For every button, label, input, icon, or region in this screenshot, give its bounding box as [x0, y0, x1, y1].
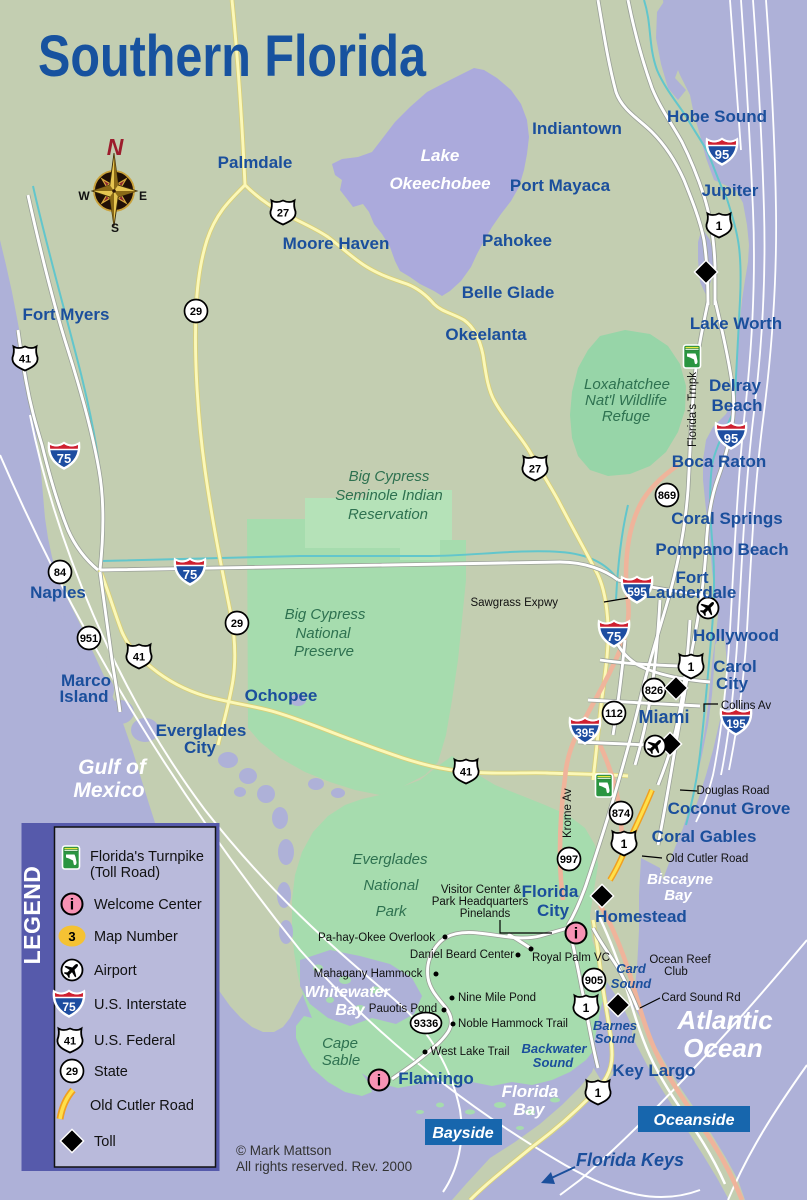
svg-text:Pahokee: Pahokee — [482, 231, 552, 250]
svg-text:3: 3 — [68, 929, 75, 944]
svg-text:Sound: Sound — [533, 1055, 574, 1070]
svg-text:29: 29 — [231, 618, 243, 630]
svg-text:Florida's Turnpike: Florida's Turnpike — [90, 849, 204, 865]
svg-text:Pompano Beach: Pompano Beach — [655, 540, 788, 559]
svg-text:N: N — [107, 134, 124, 160]
svg-text:Old Cutler Road: Old Cutler Road — [666, 853, 748, 865]
svg-text:All rights reserved. Rev. 2000: All rights reserved. Rev. 2000 — [236, 1159, 412, 1174]
svg-text:826: 826 — [645, 685, 663, 697]
svg-text:Oceanside: Oceanside — [654, 1112, 735, 1129]
svg-text:29: 29 — [66, 1066, 78, 1078]
svg-text:Bay: Bay — [335, 1002, 365, 1019]
svg-text:Toll: Toll — [94, 1134, 116, 1150]
svg-text:Old Cutler Road: Old Cutler Road — [90, 1098, 194, 1114]
svg-text:1: 1 — [621, 837, 628, 851]
svg-text:U.S. Interstate: U.S. Interstate — [94, 997, 187, 1013]
svg-text:Ochopee: Ochopee — [245, 686, 318, 705]
svg-text:869: 869 — [658, 490, 676, 502]
svg-text:Okeelanta: Okeelanta — [445, 325, 527, 344]
svg-text:LEGEND: LEGEND — [19, 866, 45, 965]
svg-text:Boca Raton: Boca Raton — [672, 452, 766, 471]
svg-text:75: 75 — [62, 1000, 76, 1014]
svg-text:Hollywood: Hollywood — [693, 626, 779, 645]
svg-text:41: 41 — [133, 652, 145, 664]
svg-text:Beach: Beach — [711, 396, 762, 415]
svg-text:Pinelands: Pinelands — [460, 908, 511, 920]
svg-text:Backwater: Backwater — [521, 1041, 587, 1056]
svg-text:75: 75 — [183, 567, 197, 582]
svg-text:Key Largo: Key Largo — [612, 1061, 695, 1080]
svg-text:Mahagany Hammock: Mahagany Hammock — [314, 968, 423, 980]
svg-text:Coral Springs: Coral Springs — [671, 509, 782, 528]
svg-text:Card Sound Rd: Card Sound Rd — [661, 992, 740, 1004]
svg-text:195: 195 — [726, 719, 746, 731]
svg-text:National: National — [295, 625, 351, 642]
svg-text:Indiantown: Indiantown — [532, 119, 622, 138]
svg-text:Lake: Lake — [421, 146, 460, 165]
svg-text:U.S. Federal: U.S. Federal — [94, 1033, 175, 1049]
svg-text:41: 41 — [19, 354, 31, 366]
svg-text:Florida Keys: Florida Keys — [576, 1150, 684, 1170]
svg-text:Collins Av: Collins Av — [721, 700, 772, 712]
svg-text:874: 874 — [612, 808, 631, 820]
svg-text:Palmdale: Palmdale — [218, 153, 293, 172]
svg-text:Atlantic: Atlantic — [676, 1005, 773, 1035]
svg-text:Big Cypress: Big Cypress — [285, 606, 366, 623]
svg-text:84: 84 — [54, 567, 67, 579]
svg-text:Sable: Sable — [322, 1052, 360, 1069]
svg-text:1: 1 — [688, 660, 695, 674]
svg-text:27: 27 — [529, 464, 541, 476]
svg-text:95: 95 — [724, 431, 738, 446]
svg-text:Noble Hammock Trail: Noble Hammock Trail — [458, 1018, 568, 1030]
svg-text:Okeechobee: Okeechobee — [389, 174, 490, 193]
svg-text:Douglas Road: Douglas Road — [697, 785, 770, 797]
svg-text:Hobe Sound: Hobe Sound — [667, 107, 767, 126]
svg-text:Coconut Grove: Coconut Grove — [668, 799, 791, 818]
svg-text:Lake Worth: Lake Worth — [690, 314, 782, 333]
svg-text:Refuge: Refuge — [602, 408, 650, 425]
svg-text:Jupiter: Jupiter — [702, 181, 759, 200]
svg-text:9336: 9336 — [414, 1018, 438, 1030]
svg-text:West Lake Trail: West Lake Trail — [430, 1046, 509, 1058]
svg-text:112: 112 — [605, 708, 623, 720]
svg-text:27: 27 — [277, 208, 289, 220]
svg-text:Bayside: Bayside — [432, 1125, 493, 1142]
svg-text:Loxahatchee: Loxahatchee — [584, 376, 670, 393]
svg-text:Royal Palm VC: Royal Palm VC — [532, 952, 610, 964]
svg-text:Fort Myers: Fort Myers — [23, 305, 110, 324]
svg-text:S: S — [111, 221, 119, 235]
svg-text:Moore Haven: Moore Haven — [283, 234, 390, 253]
svg-text:905: 905 — [585, 975, 603, 987]
svg-text:(Toll Road): (Toll Road) — [90, 865, 160, 881]
svg-text:Airport: Airport — [94, 963, 137, 979]
svg-text:National: National — [363, 877, 419, 894]
svg-text:Florida: Florida — [502, 1082, 559, 1101]
svg-text:Belle Glade: Belle Glade — [462, 283, 555, 302]
svg-text:Island: Island — [59, 687, 108, 706]
svg-text:Ocean Reef: Ocean Reef — [649, 954, 711, 966]
svg-text:© Mark Mattson: © Mark Mattson — [236, 1143, 331, 1158]
svg-text:Florida: Florida — [522, 882, 579, 901]
svg-text:1: 1 — [595, 1086, 602, 1100]
svg-text:Park Headquarters: Park Headquarters — [432, 896, 529, 908]
svg-text:Bay: Bay — [513, 1100, 546, 1119]
svg-text:29: 29 — [190, 306, 202, 318]
svg-text:Preserve: Preserve — [294, 643, 354, 660]
svg-text:Ocean: Ocean — [683, 1033, 763, 1063]
svg-text:Reservation: Reservation — [348, 506, 428, 523]
svg-text:951: 951 — [80, 633, 98, 645]
svg-text:Card: Card — [616, 961, 647, 976]
svg-text:Park: Park — [376, 903, 408, 920]
svg-text:Krome Av: Krome Av — [562, 788, 574, 838]
svg-text:Miami: Miami — [638, 707, 689, 727]
svg-text:Biscayne: Biscayne — [647, 871, 713, 888]
svg-text:Club: Club — [664, 966, 688, 978]
svg-text:Southern Florida: Southern Florida — [38, 24, 427, 89]
svg-text:Daniel Beard Center: Daniel Beard Center — [410, 949, 514, 961]
svg-text:E: E — [139, 189, 147, 203]
svg-text:W: W — [78, 189, 90, 203]
svg-text:Lauderdale: Lauderdale — [646, 583, 737, 602]
svg-text:Gulf of: Gulf of — [78, 756, 148, 779]
svg-text:State: State — [94, 1064, 128, 1080]
svg-text:City: City — [716, 674, 749, 693]
svg-text:City: City — [184, 738, 217, 757]
svg-text:Whitewater: Whitewater — [304, 984, 390, 1001]
svg-text:1: 1 — [716, 219, 723, 233]
svg-text:595: 595 — [627, 587, 647, 599]
svg-text:Big Cypress: Big Cypress — [349, 468, 430, 485]
svg-text:75: 75 — [607, 629, 621, 644]
svg-text:Nat'l Wildlife: Nat'l Wildlife — [585, 392, 667, 409]
svg-text:Naples: Naples — [30, 583, 86, 602]
svg-text:41: 41 — [460, 767, 472, 779]
svg-text:Seminole Indian: Seminole Indian — [335, 487, 443, 504]
svg-text:Bay: Bay — [664, 887, 692, 904]
svg-text:Florida's Trnpk: Florida's Trnpk — [687, 372, 699, 447]
svg-text:Pauotis Pond: Pauotis Pond — [369, 1003, 437, 1015]
svg-text:Nine Mile Pond: Nine Mile Pond — [458, 992, 536, 1004]
svg-text:1: 1 — [583, 1001, 590, 1015]
svg-text:75: 75 — [57, 451, 71, 466]
svg-text:Coral Gables: Coral Gables — [652, 827, 757, 846]
svg-text:Delray: Delray — [709, 376, 762, 395]
svg-text:41: 41 — [64, 1036, 76, 1048]
svg-text:Cape: Cape — [322, 1035, 358, 1052]
svg-text:Welcome Center: Welcome Center — [94, 897, 202, 913]
svg-text:Everglades: Everglades — [352, 851, 428, 868]
svg-text:Port Mayaca: Port Mayaca — [510, 176, 611, 195]
svg-text:Homestead: Homestead — [595, 907, 687, 926]
svg-text:Map Number: Map Number — [94, 929, 178, 945]
svg-text:Sawgrass Expwy: Sawgrass Expwy — [470, 597, 558, 609]
svg-text:395: 395 — [575, 728, 595, 740]
svg-text:Flamingo: Flamingo — [398, 1069, 474, 1088]
svg-text:997: 997 — [560, 854, 578, 866]
svg-text:Sound: Sound — [595, 1031, 636, 1046]
svg-text:Mexico: Mexico — [73, 779, 144, 802]
svg-text:Visitor Center &: Visitor Center & — [441, 884, 522, 896]
svg-text:City: City — [537, 901, 570, 920]
svg-text:Pa-hay-Okee Overlook: Pa-hay-Okee Overlook — [318, 932, 435, 944]
svg-text:95: 95 — [715, 147, 729, 162]
svg-text:Sound: Sound — [611, 976, 652, 991]
